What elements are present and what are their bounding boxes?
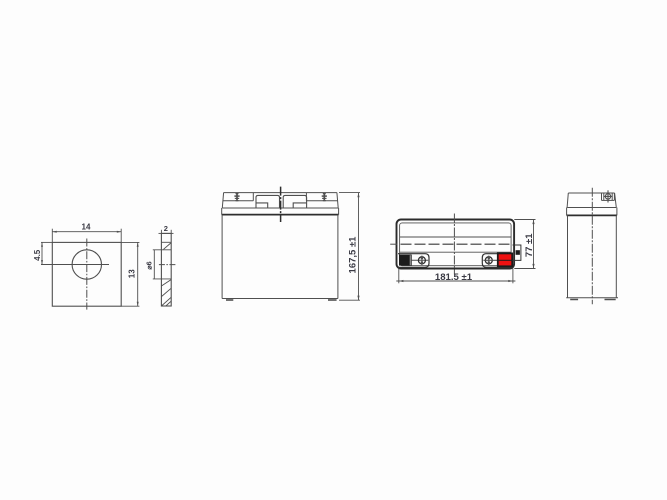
- svg-text:13: 13: [127, 269, 136, 278]
- svg-text:181.5 ±1: 181.5 ±1: [435, 272, 473, 283]
- svg-text:4.5: 4.5: [33, 249, 42, 261]
- svg-text:77 ±1: 77 ±1: [524, 233, 535, 257]
- svg-text:14: 14: [82, 223, 91, 232]
- svg-text:167,5 ±1: 167,5 ±1: [348, 236, 359, 274]
- svg-text:⌀6: ⌀6: [145, 261, 154, 269]
- svg-text:2: 2: [164, 224, 168, 233]
